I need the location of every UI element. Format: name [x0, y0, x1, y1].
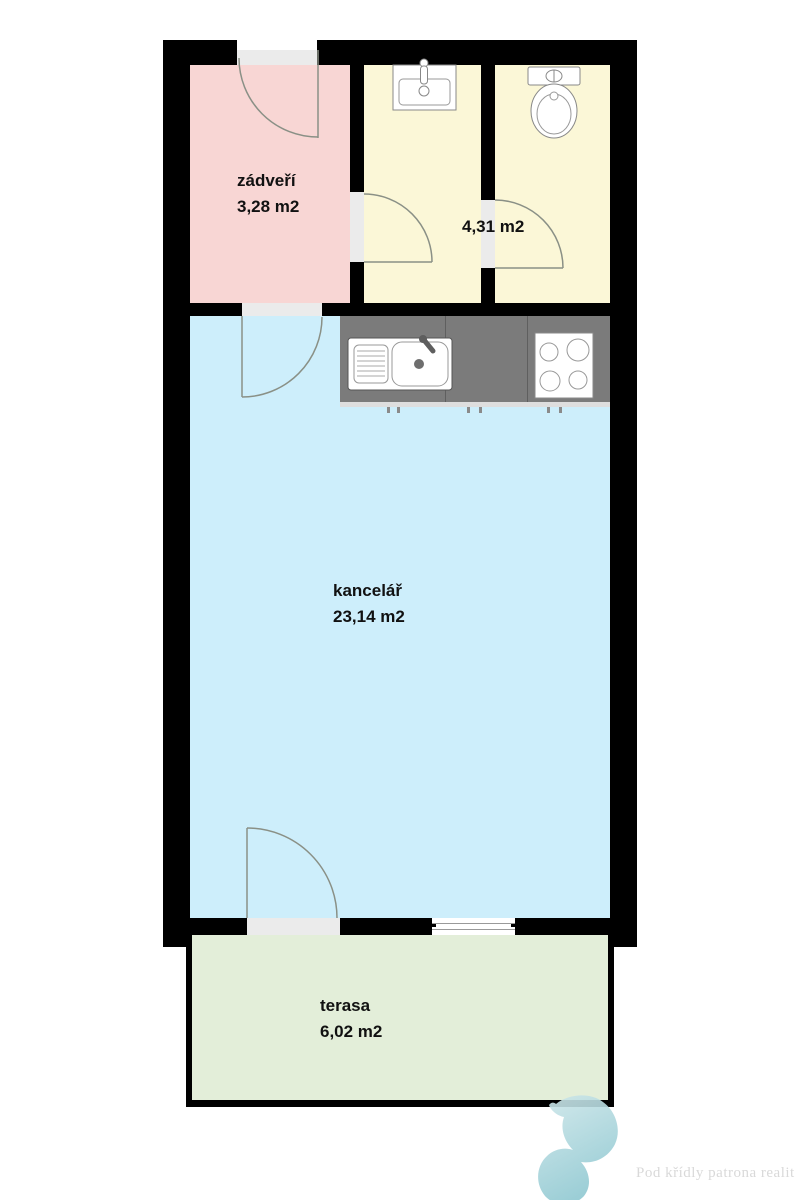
- room-area: 6,02 m2: [320, 1019, 382, 1045]
- room-area: 23,14 m2: [333, 604, 405, 630]
- room-name: kancelář: [333, 578, 405, 604]
- floor-plan: zádveří 3,28 m2 4,31 m2 kancelář 23,14 m…: [0, 0, 800, 1200]
- cabinet-handle: [467, 407, 470, 413]
- wall-bottom-a: [190, 918, 247, 935]
- wall-top-b: [317, 40, 637, 65]
- window-notch: [432, 924, 436, 927]
- wall-bottom-b: [340, 918, 432, 935]
- wall-right: [610, 40, 637, 947]
- room-name: terasa: [320, 993, 382, 1019]
- bathroom1-door-threshold: [350, 192, 364, 262]
- wall-mid-a: [190, 303, 242, 316]
- room-area: 4,31 m2: [462, 214, 524, 240]
- room-bathroom-wc: [495, 65, 610, 303]
- kitchen-counter: [340, 316, 610, 402]
- window-notch: [511, 924, 515, 927]
- terasa-door-threshold: [247, 918, 340, 935]
- cabinet-handle: [559, 407, 562, 413]
- room-label-terasa: terasa 6,02 m2: [320, 993, 382, 1045]
- wall-left: [163, 40, 190, 947]
- room-name: zádveří: [237, 168, 299, 194]
- counter-divider: [445, 316, 446, 402]
- cabinet-handle: [479, 407, 482, 413]
- window-glass-line: [432, 923, 515, 924]
- wall-top-a: [163, 40, 237, 65]
- window-glass-line: [432, 929, 515, 930]
- wall-bottom-c: [515, 918, 610, 935]
- room-bathroom-sink: [364, 65, 481, 303]
- room-label-bathroom: 4,31 m2: [462, 214, 524, 240]
- room-terasa: [192, 935, 608, 1100]
- room-label-kancelar: kancelář 23,14 m2: [333, 578, 405, 630]
- bird-swirl-logo: [538, 1095, 618, 1200]
- kitchen-counter-edge: [340, 402, 610, 407]
- watermark-text: Pod křídly patrona realit: [636, 1165, 795, 1182]
- counter-divider: [527, 316, 528, 402]
- cabinet-handle: [387, 407, 390, 413]
- entrance-opening-outer: [237, 40, 317, 50]
- entrance-threshold: [237, 50, 317, 65]
- wall-mid-b: [322, 303, 610, 316]
- window: [432, 918, 515, 935]
- cabinet-handle: [547, 407, 550, 413]
- room-area: 3,28 m2: [237, 194, 299, 220]
- wall-interior-1: [350, 65, 364, 303]
- room-label-zadveri: zádveří 3,28 m2: [237, 168, 299, 220]
- cabinet-handle: [397, 407, 400, 413]
- kancelar-door-threshold: [242, 303, 322, 316]
